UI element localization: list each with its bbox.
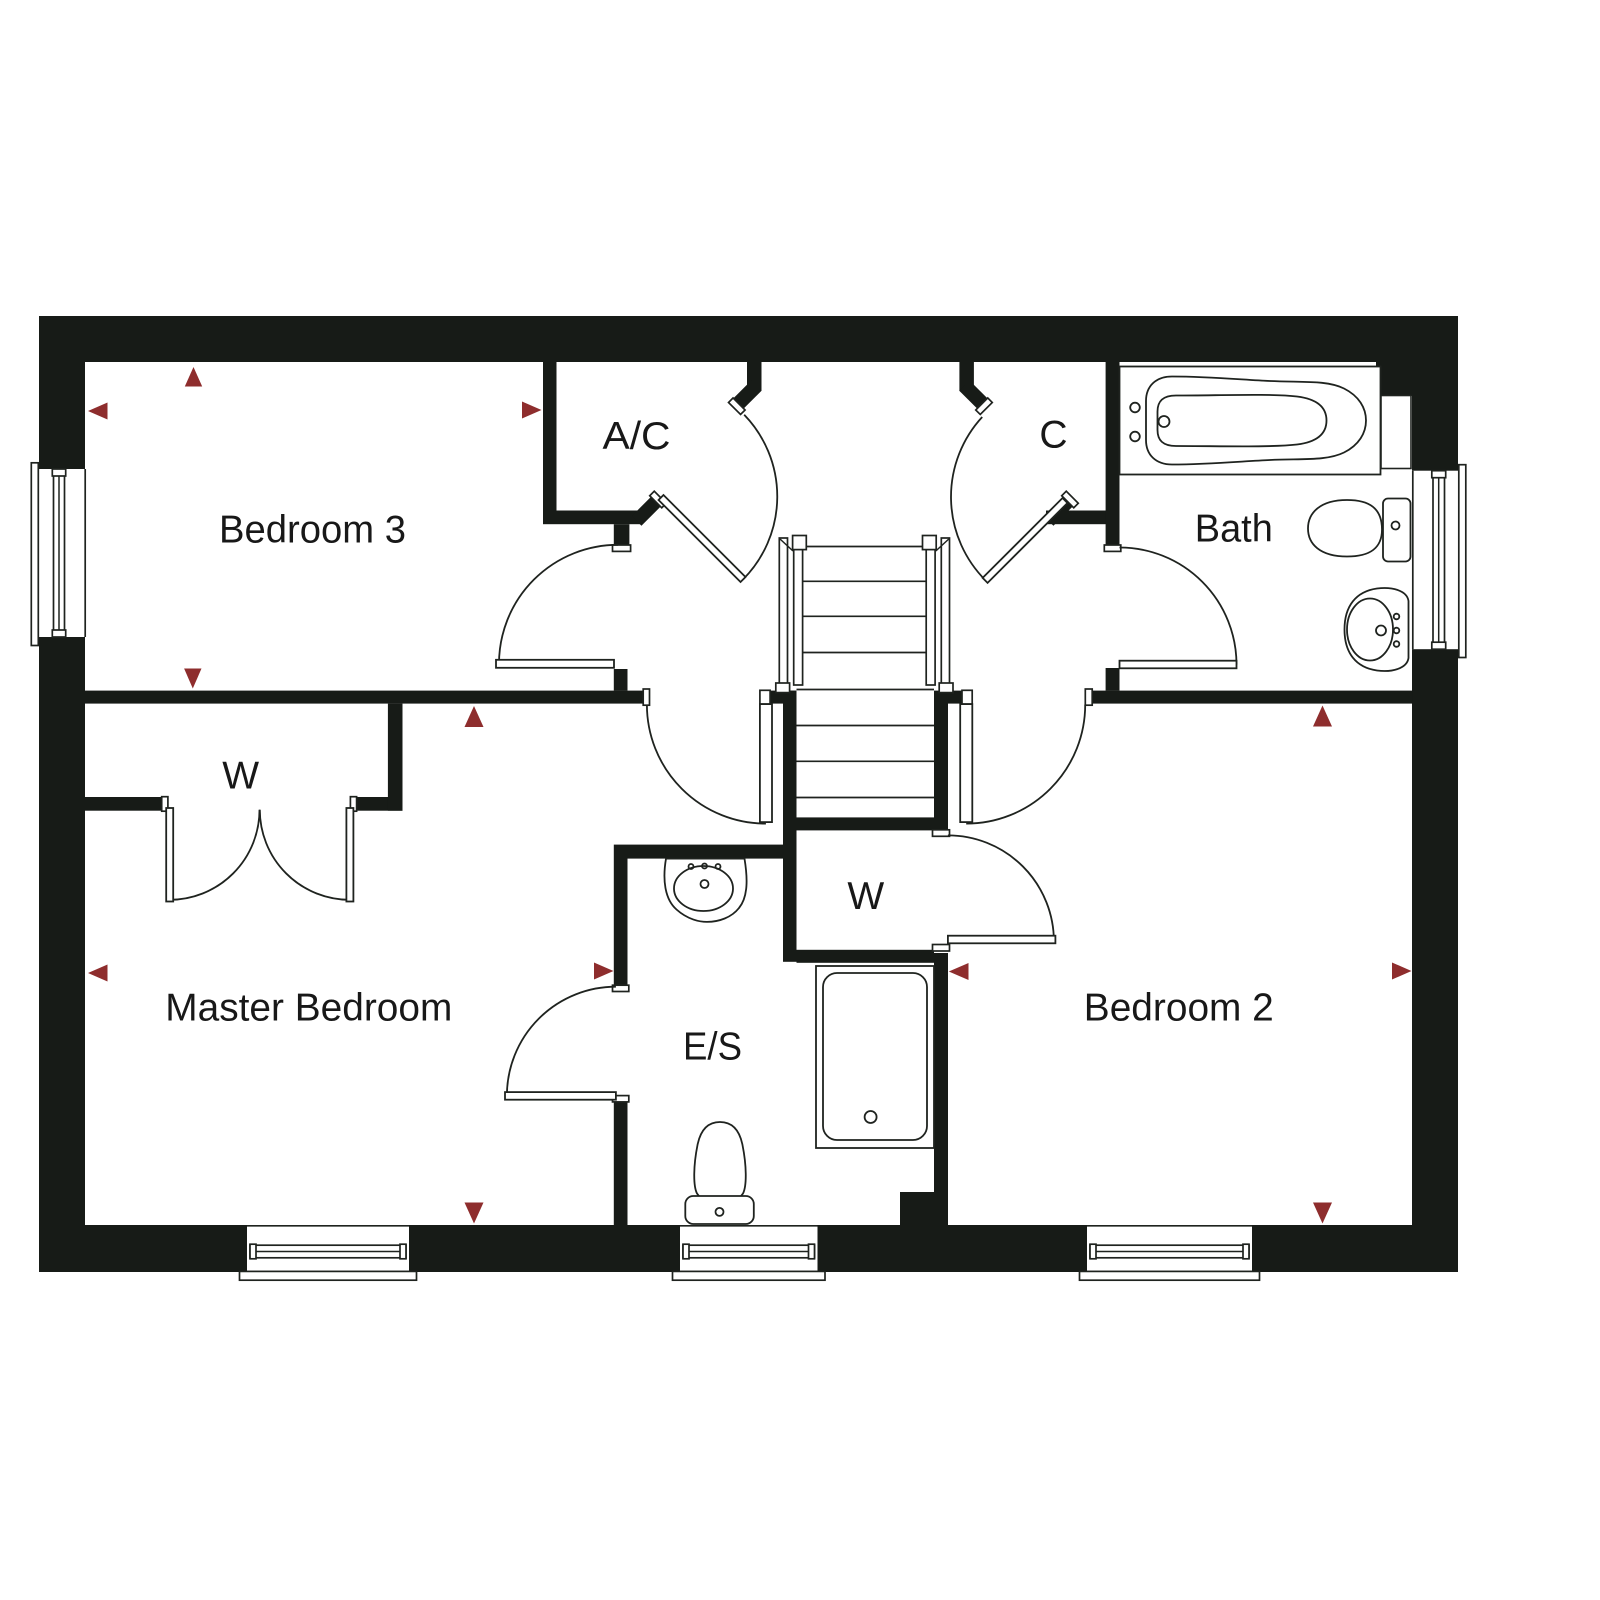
svg-text:C: C [1039,414,1067,457]
svg-text:Bedroom 3: Bedroom 3 [219,509,406,552]
svg-text:W: W [847,875,884,918]
svg-text:Master Bedroom: Master Bedroom [165,987,452,1030]
svg-text:A/C: A/C [603,415,671,458]
svg-text:Bath: Bath [1195,507,1273,550]
svg-text:Bedroom 2: Bedroom 2 [1084,987,1274,1030]
svg-text:E/S: E/S [683,1026,742,1069]
svg-text:W: W [222,754,259,797]
